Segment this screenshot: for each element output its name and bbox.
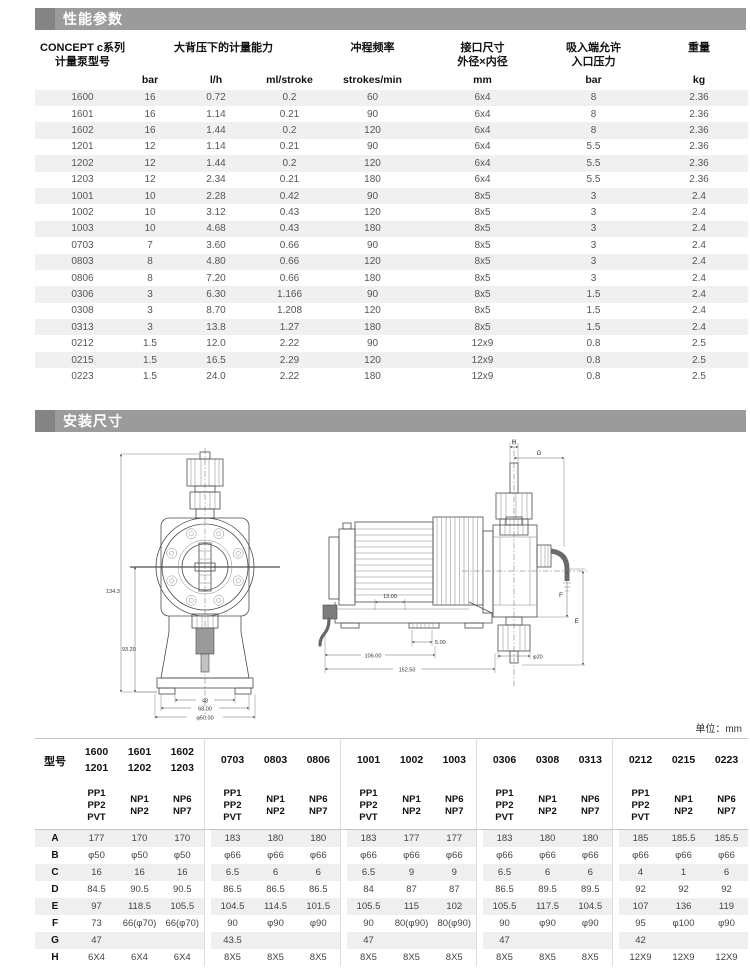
- dimension-cell: 66(φ70): [161, 915, 204, 932]
- dimension-row-label: D: [35, 881, 75, 898]
- dimension-cell: 177: [390, 829, 433, 847]
- performance-row: 070373.600.66908x532.4: [35, 237, 748, 253]
- material-header: PP1 PP2 PVT: [619, 783, 662, 830]
- performance-cell: 2.36: [650, 122, 748, 138]
- dimension-cell: 185.5: [662, 829, 705, 847]
- dimension-cell: φ90: [297, 915, 340, 932]
- material-header: NP1 NP2: [662, 783, 705, 830]
- performance-row: 1201121.140.21906x45.52.36: [35, 139, 748, 155]
- dimension-cell: φ90: [569, 915, 612, 932]
- performance-cell: 3: [537, 237, 650, 253]
- dimension-cell: 8X5: [390, 949, 433, 966]
- dimension-cell: 180: [569, 829, 612, 847]
- dimension-cell: 47: [483, 932, 526, 949]
- performance-cell: 6x4: [428, 122, 537, 138]
- performance-cell: 12x9: [428, 368, 537, 384]
- performance-cell: 120: [317, 155, 428, 171]
- performance-cell: 1.5: [537, 319, 650, 335]
- dimension-cell: 1: [662, 864, 705, 881]
- performance-cell: 16.5: [170, 352, 262, 368]
- dimension-cell: 90.5: [118, 881, 161, 898]
- dimension-row: H6X46X46X48X58X58X58X58X58X58X58X58X512X…: [35, 949, 748, 966]
- performance-cell: 8: [537, 122, 650, 138]
- performance-cell: 0223: [35, 368, 130, 384]
- performance-cell: 0212: [35, 335, 130, 351]
- performance-cell: 6x4: [428, 172, 537, 188]
- dimension-cell: 183: [211, 829, 254, 847]
- performance-cell: 120: [317, 122, 428, 138]
- group-gap: [612, 829, 619, 847]
- performance-cell: 3: [130, 303, 170, 319]
- dimension-cell: 8X5: [297, 949, 340, 966]
- section-header-performance: 性能参数: [35, 8, 746, 30]
- unit-bar: bar: [130, 70, 170, 90]
- dimension-cell: 6: [705, 864, 748, 881]
- performance-cell: 8x5: [428, 188, 537, 204]
- performance-row: 02231.524.02.2218012x90.82.5: [35, 368, 748, 384]
- dimension-cell: 8X5: [254, 949, 297, 966]
- dimension-cell: 114.5: [254, 898, 297, 915]
- group-gap: [340, 864, 347, 881]
- group-gap: [612, 932, 619, 949]
- model-header: 0308: [526, 738, 569, 783]
- performance-cell: 2.22: [262, 368, 317, 384]
- performance-row: 1003104.680.431808x532.4: [35, 221, 748, 237]
- performance-cell: 3: [537, 204, 650, 220]
- dimension-cell: φ50: [118, 847, 161, 864]
- performance-cell: 2.34: [170, 172, 262, 188]
- section-header-dimensions: 安装尺寸: [35, 410, 746, 432]
- section-title-dimensions: 安装尺寸: [55, 411, 123, 431]
- dimension-cell: 6: [526, 864, 569, 881]
- performance-cell: 2.4: [650, 319, 748, 335]
- performance-row: 1600160.720.2606x482.36: [35, 90, 748, 106]
- port-header-line1: 接口尺寸: [428, 41, 537, 55]
- performance-cell: 1.44: [170, 122, 262, 138]
- model-header: 1002: [390, 738, 433, 783]
- dimension-materials-row: PP1 PP2 PVTNP1 NP2NP6 NP7PP1 PP2 PVTNP1 …: [35, 783, 748, 830]
- performance-cell: 8.70: [170, 303, 262, 319]
- performance-cell: 0703: [35, 237, 130, 253]
- performance-cell: 1.5: [130, 352, 170, 368]
- group-gap: [204, 881, 211, 898]
- performance-cell: 90: [317, 188, 428, 204]
- performance-cell: 3.12: [170, 204, 262, 220]
- unit-mlstroke: ml/stroke: [262, 70, 317, 90]
- dimension-cell: 47: [75, 932, 118, 949]
- performance-cell: 1602: [35, 122, 130, 138]
- group-gap: [476, 738, 483, 783]
- performance-cell: 1601: [35, 106, 130, 122]
- dimension-cell: 8X5: [347, 949, 390, 966]
- performance-cell: 0.2: [262, 90, 317, 106]
- front-dim-center-height: 93.20: [122, 647, 136, 653]
- dimension-cell: 8X5: [211, 949, 254, 966]
- performance-cell: 1203: [35, 172, 130, 188]
- performance-cell: 8x5: [428, 303, 537, 319]
- dimension-cell: 97: [75, 898, 118, 915]
- pump-side-view-drawing: H G F E 13.00 5.00 106.00 1: [317, 437, 617, 695]
- model-header: 0806: [297, 738, 340, 783]
- group-gap: [204, 949, 211, 966]
- dimension-cell: 16: [118, 864, 161, 881]
- performance-cell: 1.14: [170, 106, 262, 122]
- dimension-cell: 180: [297, 829, 340, 847]
- dimension-cell: [569, 932, 612, 949]
- performance-cell: 1201: [35, 139, 130, 155]
- performance-cell: 180: [317, 368, 428, 384]
- dimension-cell: φ66: [705, 847, 748, 864]
- performance-cell: 6x4: [428, 155, 537, 171]
- performance-cell: 13.8: [170, 319, 262, 335]
- performance-cell: 0803: [35, 254, 130, 270]
- dimension-cell: φ66: [433, 847, 476, 864]
- dimension-row-label: B: [35, 847, 75, 864]
- dimension-cell: [118, 932, 161, 949]
- dimension-cell: 8X5: [569, 949, 612, 966]
- dimension-cell: 9: [433, 864, 476, 881]
- performance-cell: 2.4: [650, 204, 748, 220]
- performance-cell: 3: [537, 254, 650, 270]
- performance-cell: 16: [130, 90, 170, 106]
- datasheet-page: 性能参数 CONCEPT c系列 计量泵型号 大背压下的计量能力 冲程频率 接口…: [0, 0, 750, 970]
- performance-cell: 2.36: [650, 155, 748, 171]
- dimension-cell: 104.5: [211, 898, 254, 915]
- dimension-cell: 183: [347, 829, 390, 847]
- model-column-header: CONCEPT c系列 计量泵型号: [35, 36, 130, 90]
- side-valve-elbow: [537, 545, 571, 591]
- dimension-cell: 185: [619, 829, 662, 847]
- dimension-cell: [390, 932, 433, 949]
- dimension-cell: 86.5: [254, 881, 297, 898]
- dimension-cell: 66(φ70): [118, 915, 161, 932]
- material-header: NP6 NP7: [161, 783, 204, 830]
- dimension-cell: φ50: [75, 847, 118, 864]
- performance-row: 030838.701.2081208x51.52.4: [35, 303, 748, 319]
- material-header: NP6 NP7: [705, 783, 748, 830]
- material-header: NP6 NP7: [433, 783, 476, 830]
- model-header-line2: 计量泵型号: [35, 55, 130, 69]
- dimension-cell: 90: [211, 915, 254, 932]
- performance-cell: 6.30: [170, 286, 262, 302]
- performance-cell: 7.20: [170, 270, 262, 286]
- material-header: NP1 NP2: [390, 783, 433, 830]
- performance-cell: 12: [130, 155, 170, 171]
- dimension-cell: φ90: [526, 915, 569, 932]
- performance-cell: 8x5: [428, 221, 537, 237]
- section-accent-block: [35, 8, 55, 30]
- group-gap: [612, 864, 619, 881]
- model-header: 1600 1201: [75, 738, 118, 783]
- performance-cell: 1.27: [262, 319, 317, 335]
- capacity-column-header: 大背压下的计量能力: [130, 36, 317, 70]
- dimension-cell: 73: [75, 915, 118, 932]
- group-gap: [476, 949, 483, 966]
- group-gap: [476, 864, 483, 881]
- performance-cell: 2.4: [650, 303, 748, 319]
- side-dim-152: 152.50: [399, 667, 416, 673]
- dimension-cell: φ66: [619, 847, 662, 864]
- dimension-row-label: H: [35, 949, 75, 966]
- side-dim-106: 106.00: [365, 653, 382, 659]
- group-gap: [340, 783, 347, 830]
- performance-cell: 90: [317, 139, 428, 155]
- dimension-cell: φ66: [526, 847, 569, 864]
- dimension-row: A177170170183180180183177177183180180185…: [35, 829, 748, 847]
- performance-cell: 90: [317, 106, 428, 122]
- performance-cell: 0.72: [170, 90, 262, 106]
- dimension-cell: 16: [161, 864, 204, 881]
- group-gap: [476, 915, 483, 932]
- model-header: 0703: [211, 738, 254, 783]
- dimension-cell: φ90: [254, 915, 297, 932]
- dimension-cell: 87: [390, 881, 433, 898]
- performance-cell: 2.4: [650, 237, 748, 253]
- dimension-cell: 107: [619, 898, 662, 915]
- dimension-cell: 95: [619, 915, 662, 932]
- performance-row: 1203122.340.211806x45.52.36: [35, 172, 748, 188]
- dimension-cell: 16: [75, 864, 118, 881]
- performance-cell: 8x5: [428, 270, 537, 286]
- group-gap: [340, 898, 347, 915]
- dimension-cell: 92: [662, 881, 705, 898]
- unit-strokesmin: strokes/min: [317, 70, 428, 90]
- performance-cell: 3.60: [170, 237, 262, 253]
- dimension-cell: [254, 932, 297, 949]
- model-header: 1602 1203: [161, 738, 204, 783]
- side-dim-h: H: [512, 439, 517, 446]
- dimension-cell: 6.5: [483, 864, 526, 881]
- dimension-cell: 12X9: [619, 949, 662, 966]
- model-header: 1001: [347, 738, 390, 783]
- material-header: NP6 NP7: [297, 783, 340, 830]
- dimension-cell: 89.5: [526, 881, 569, 898]
- performance-cell: 3: [130, 286, 170, 302]
- dimension-cell: 43.5: [211, 932, 254, 949]
- performance-cell: 12: [130, 139, 170, 155]
- dimension-cell: 42: [619, 932, 662, 949]
- performance-cell: 1.5: [537, 286, 650, 302]
- performance-cell: 3: [537, 221, 650, 237]
- group-gap: [204, 738, 211, 783]
- side-motor: [329, 517, 483, 605]
- installation-drawings: 134.3 93.20 48 68.00 φ50.00: [0, 432, 750, 720]
- dimension-cell: 6: [254, 864, 297, 881]
- group-gap: [340, 829, 347, 847]
- group-gap: [204, 932, 211, 949]
- model-header: 0223: [705, 738, 748, 783]
- material-header: NP1 NP2: [254, 783, 297, 830]
- material-header: NP6 NP7: [569, 783, 612, 830]
- dimension-row-label: G: [35, 932, 75, 949]
- side-power-cord: [320, 605, 337, 645]
- performance-cell: 2.36: [650, 90, 748, 106]
- dimension-cell: 180: [526, 829, 569, 847]
- performance-cell: 0.8: [537, 368, 650, 384]
- group-gap: [340, 932, 347, 949]
- performance-cell: 1002: [35, 204, 130, 220]
- model-header: 0803: [254, 738, 297, 783]
- performance-cell: 2.36: [650, 172, 748, 188]
- dimension-cell: 180: [254, 829, 297, 847]
- group-gap: [340, 915, 347, 932]
- performance-cell: 1003: [35, 221, 130, 237]
- material-header: NP1 NP2: [118, 783, 161, 830]
- performance-cell: 1600: [35, 90, 130, 106]
- performance-cell: 120: [317, 254, 428, 270]
- performance-cell: 12.0: [170, 335, 262, 351]
- unit-suction-bar: bar: [537, 70, 650, 90]
- performance-cell: 8x5: [428, 286, 537, 302]
- dimension-cell: φ50: [161, 847, 204, 864]
- dimension-models-row: 型号1600 12011601 12021602 120307030803080…: [35, 738, 748, 783]
- performance-cell: 12x9: [428, 352, 537, 368]
- performance-cell: 0.8: [537, 335, 650, 351]
- performance-cell: 2.4: [650, 270, 748, 286]
- dimension-cell: [161, 932, 204, 949]
- dimension-row: C1616166.5666.5996.566416: [35, 864, 748, 881]
- dimension-row: D84.590.590.586.586.586.584878786.589.58…: [35, 881, 748, 898]
- dimension-cell: [526, 932, 569, 949]
- performance-cell: 2.29: [262, 352, 317, 368]
- performance-cell: 8x5: [428, 319, 537, 335]
- dimension-cell: 80(φ90): [433, 915, 476, 932]
- dimension-cell: 185.5: [705, 829, 748, 847]
- dimension-cell: 92: [705, 881, 748, 898]
- performance-cell: 0.66: [262, 254, 317, 270]
- performance-cell: 8: [537, 90, 650, 106]
- performance-cell: 6x4: [428, 106, 537, 122]
- performance-cell: 2.4: [650, 286, 748, 302]
- front-dim-total-height: 134.3: [106, 589, 120, 595]
- performance-cell: 2.4: [650, 188, 748, 204]
- group-gap: [476, 829, 483, 847]
- dimension-cell: 170: [161, 829, 204, 847]
- model-header: 0212: [619, 738, 662, 783]
- front-dimension-lines: 134.3 93.20 48 68.00 φ50.00: [106, 454, 255, 722]
- dimension-cell: 6: [569, 864, 612, 881]
- performance-row: 1601161.140.21906x482.36: [35, 106, 748, 122]
- performance-row: 1001102.280.42908x532.4: [35, 188, 748, 204]
- dimension-cell: 183: [483, 829, 526, 847]
- performance-cell: 4.80: [170, 254, 262, 270]
- performance-cell: 4.68: [170, 221, 262, 237]
- dimension-cell: 89.5: [569, 881, 612, 898]
- dimension-cell: 8X5: [483, 949, 526, 966]
- dimension-cell: 92: [619, 881, 662, 898]
- dimension-cell: φ90: [705, 915, 748, 932]
- performance-cell: 0313: [35, 319, 130, 335]
- frequency-column-header: 冲程频率: [317, 36, 428, 70]
- performance-cell: 180: [317, 319, 428, 335]
- performance-cell: 8x5: [428, 254, 537, 270]
- dimension-cell: 105.5: [161, 898, 204, 915]
- group-gap: [612, 949, 619, 966]
- dimension-cell: φ66: [211, 847, 254, 864]
- performance-cell: 180: [317, 270, 428, 286]
- performance-cell: 0.21: [262, 172, 317, 188]
- performance-cell: 6x4: [428, 90, 537, 106]
- performance-cell: 0215: [35, 352, 130, 368]
- performance-cell: 10: [130, 204, 170, 220]
- dimension-cell: 6: [297, 864, 340, 881]
- suction-header-line2: 入口压力: [537, 55, 650, 69]
- performance-cell: 2.4: [650, 221, 748, 237]
- model-header: 1003: [433, 738, 476, 783]
- performance-cell: 2.36: [650, 106, 748, 122]
- port-header-line2: 外径×内径: [428, 55, 537, 69]
- group-gap: [340, 881, 347, 898]
- performance-cell: 0.2: [262, 122, 317, 138]
- model-header: 0215: [662, 738, 705, 783]
- dimension-cell: [705, 932, 748, 949]
- group-gap: [204, 783, 211, 830]
- material-header: PP1 PP2 PVT: [483, 783, 526, 830]
- performance-cell: 0306: [35, 286, 130, 302]
- model-header: 0313: [569, 738, 612, 783]
- material-header: PP1 PP2 PVT: [347, 783, 390, 830]
- unit-mm: mm: [428, 70, 537, 90]
- unit-lh: l/h: [170, 70, 262, 90]
- pump-front-view-drawing: 134.3 93.20 48 68.00 φ50.00: [105, 446, 295, 724]
- performance-cell: 120: [317, 303, 428, 319]
- performance-cell: 2.28: [170, 188, 262, 204]
- side-base: [335, 602, 492, 628]
- dimension-row: F7366(φ70)66(φ70)90φ90φ909080(φ90)80(φ90…: [35, 915, 748, 932]
- performance-cell: 1.5: [537, 303, 650, 319]
- dimension-row-label: E: [35, 898, 75, 915]
- performance-table-head: CONCEPT c系列 计量泵型号 大背压下的计量能力 冲程频率 接口尺寸 外径…: [35, 36, 748, 90]
- performance-cell: 1.5: [130, 335, 170, 351]
- performance-row: 080384.800.661208x532.4: [35, 254, 748, 270]
- performance-cell: 24.0: [170, 368, 262, 384]
- group-gap: [612, 915, 619, 932]
- dimension-cell: 4: [619, 864, 662, 881]
- performance-cell: 1.44: [170, 155, 262, 171]
- dimension-cell: 6X4: [161, 949, 204, 966]
- dimension-row: G4743.5474742: [35, 932, 748, 949]
- performance-row: 1602161.440.21206x482.36: [35, 122, 748, 138]
- side-dim-phi20: φ20: [533, 654, 543, 660]
- performance-row: 02121.512.02.229012x90.82.5: [35, 335, 748, 351]
- dimension-cell: 101.5: [297, 898, 340, 915]
- dimension-cell: 6X4: [118, 949, 161, 966]
- dimension-cell: 6.5: [347, 864, 390, 881]
- dimension-cell: 87: [433, 881, 476, 898]
- dimension-cell: 102: [433, 898, 476, 915]
- section-accent-block: [35, 410, 55, 432]
- performance-cell: 90: [317, 286, 428, 302]
- performance-cell: 16: [130, 122, 170, 138]
- performance-cell: 5.5: [537, 155, 650, 171]
- performance-cell: 10: [130, 221, 170, 237]
- performance-cell: 60: [317, 90, 428, 106]
- side-pump-head: [483, 463, 537, 663]
- section-title-performance: 性能参数: [55, 9, 123, 29]
- dimension-cell: 84: [347, 881, 390, 898]
- group-gap: [612, 738, 619, 783]
- performance-cell: 0.21: [262, 139, 317, 155]
- performance-table: CONCEPT c系列 计量泵型号 大背压下的计量能力 冲程频率 接口尺寸 外径…: [35, 36, 748, 385]
- dimension-cell: 177: [433, 829, 476, 847]
- performance-cell: 2.5: [650, 335, 748, 351]
- front-dim-outer-width: φ50.00: [196, 715, 213, 721]
- group-gap: [612, 881, 619, 898]
- dimension-cell: 105.5: [347, 898, 390, 915]
- performance-cell: 180: [317, 221, 428, 237]
- dimension-cell: 6X4: [75, 949, 118, 966]
- side-dim-5: 5.00: [435, 640, 446, 646]
